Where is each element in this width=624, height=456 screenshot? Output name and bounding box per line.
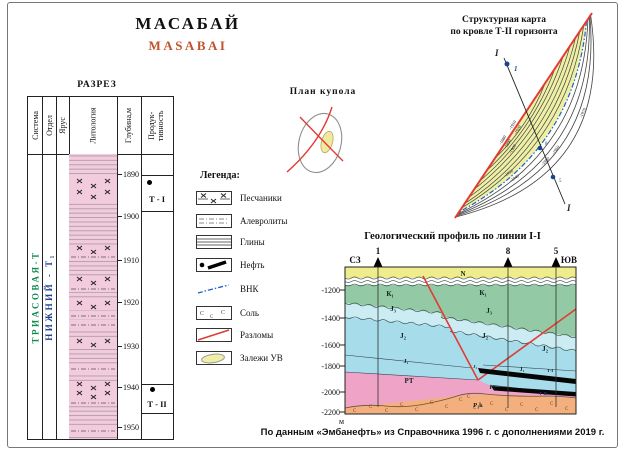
profile-depth-label: -2000 xyxy=(304,388,340,397)
profile-depth-label: -1800 xyxy=(304,362,340,371)
label-j1: J₁ xyxy=(473,364,477,369)
section-label-start: I xyxy=(494,48,499,58)
depth-tick: 1940 xyxy=(117,383,139,392)
legend-item-clay: Глины xyxy=(196,235,265,249)
profile-depth-label: -1200 xyxy=(304,286,340,295)
legend-item-siltstone: Алевролиты xyxy=(196,214,287,228)
depth-value: 1920 xyxy=(123,298,139,307)
header-productivity-label: Продук­тивность xyxy=(148,110,166,142)
well-markers xyxy=(374,257,561,267)
section-label-end: I xyxy=(566,203,571,213)
productivity-divider xyxy=(141,211,173,212)
series-name: НИЖНИЙ - Т₁ xyxy=(44,253,54,341)
legend-label: Залежи УВ xyxy=(240,353,283,363)
well-number: 8 xyxy=(506,246,511,256)
depth-value: 1890 xyxy=(123,170,139,179)
page: МАСАБАЙ MASABAI РАЗРЕЗ Система Отдел Яру… xyxy=(0,0,624,456)
well-label: 5 xyxy=(559,179,562,184)
legend-label: ВНК xyxy=(240,284,259,294)
dome-plan-figure xyxy=(275,98,370,188)
well-label: 1 xyxy=(514,65,518,73)
depth-tick: 1910 xyxy=(117,256,139,265)
label-j2: J₂ xyxy=(482,331,489,340)
well-number: 5 xyxy=(554,246,559,256)
label-t2: Т-II xyxy=(539,391,547,396)
structural-map: I I 1 8 5 -1880 -1890 -1900 -1910 -1920 … xyxy=(415,8,620,233)
well-numbers: 1 8 5 xyxy=(376,246,559,256)
well-marker xyxy=(505,62,510,67)
legend-item-salt: С С С Соль xyxy=(196,306,259,320)
siltstone-icon xyxy=(196,214,232,228)
oil-dot xyxy=(150,387,155,392)
field-title-en: MASABAI xyxy=(93,38,283,54)
label-p1k: P₁k xyxy=(473,402,483,409)
well-marker xyxy=(551,175,556,180)
direction-nw: СЗ xyxy=(349,255,360,265)
legend-label: Разломы xyxy=(240,330,273,340)
depth-tick: 1930 xyxy=(117,342,139,351)
legend-item-hc-deposits: Залежи УВ xyxy=(196,351,283,365)
legend-label: Песчаники xyxy=(240,193,282,203)
well-marker xyxy=(538,146,543,151)
depth-tick: 1950 xyxy=(117,423,139,432)
contour-value: -1970 xyxy=(578,107,587,118)
header-stage: Ярус xyxy=(56,97,69,154)
legend-label: Соль xyxy=(240,308,259,318)
lithology-column xyxy=(69,154,117,439)
well-number: 1 xyxy=(376,246,381,256)
depth-ticks xyxy=(340,290,345,412)
label-pt: РТ xyxy=(404,377,413,385)
header-lithology: Литология xyxy=(69,97,117,154)
field-title-ru: МАСАБАЙ xyxy=(93,14,283,34)
profile-depth-label: -1400 xyxy=(304,314,340,323)
label-k1: К₁ xyxy=(386,290,393,298)
header-depth-label: Глубина,м xyxy=(125,108,134,143)
productivity-divider xyxy=(141,384,173,385)
header-system-label: Система xyxy=(31,111,40,140)
depth-tick: 1900 xyxy=(117,212,139,221)
horizon-t2-label: Т - II xyxy=(141,399,173,409)
label-j2: J₂ xyxy=(542,344,549,353)
header-lithology-label: Литология xyxy=(88,107,97,143)
salt-icon: С С С xyxy=(196,306,232,320)
depth-tick: 1890 xyxy=(117,170,139,179)
label-t1: Т-I xyxy=(547,368,554,373)
label-j1: J₁ xyxy=(404,359,409,365)
legend-item-vnk: ВНК xyxy=(196,282,259,296)
horizon-t1-label: Т - I xyxy=(141,194,173,204)
legend-label: Алевролиты xyxy=(240,216,287,226)
header-system: Система xyxy=(28,97,42,154)
depth-value: 1910 xyxy=(123,256,139,265)
legend-label: Нефть xyxy=(240,260,264,270)
label-j1: J₁ xyxy=(520,367,525,373)
header-series-label: Отдел xyxy=(45,115,54,136)
stratigraphic-column-table: Система Отдел Ярус Литология Глубина,м П… xyxy=(27,96,174,440)
dome-plan-title: План купола xyxy=(277,87,369,97)
razrez-title: РАЗРЕЗ xyxy=(47,80,147,90)
header-series: Отдел xyxy=(42,97,56,154)
label-j3: J₃ xyxy=(486,307,492,315)
header-depth: Глубина,м xyxy=(117,97,141,154)
depth-value: 1940 xyxy=(123,383,139,392)
sandstone-icon xyxy=(196,191,232,205)
profile-title: Геологический профиль по линии I-I xyxy=(325,231,580,242)
system-name: ТРИАСОВАЯ-Т xyxy=(30,250,40,343)
header-productivity: Продук­тивность xyxy=(141,97,173,154)
label-j2: J₂ xyxy=(400,331,407,340)
profile-depth-unit: м xyxy=(339,417,344,426)
contour-value: -1960 xyxy=(551,144,561,155)
profile-depth-label: -1600 xyxy=(304,341,340,350)
legend-item-sandstone: Песчаники xyxy=(196,191,282,205)
series-cell: НИЖНИЙ - Т₁ xyxy=(42,154,56,439)
productivity-divider xyxy=(141,175,173,176)
productivity-divider xyxy=(141,413,173,414)
dome-outline xyxy=(292,109,348,178)
vnk-icon xyxy=(196,282,232,296)
oil-icon xyxy=(196,258,232,272)
legend-item-faults: Разломы xyxy=(196,328,273,342)
label-k1: К₁ xyxy=(479,289,486,297)
depth-value: 1930 xyxy=(123,342,139,351)
oil-dot xyxy=(147,180,152,185)
depth-tick: 1920 xyxy=(117,298,139,307)
svg-text:С: С xyxy=(221,310,225,316)
hc-deposit-icon xyxy=(196,351,232,365)
svg-text:С: С xyxy=(200,311,204,317)
header-stage-label: Ярус xyxy=(58,117,67,134)
source-caption: По данным «Эмбанефть» из Справочника 199… xyxy=(250,427,615,438)
system-cell: ТРИАСОВАЯ-Т xyxy=(28,154,42,439)
direction-se: ЮВ xyxy=(561,255,577,265)
label-pt: РТ xyxy=(489,385,496,391)
clay-icon xyxy=(196,235,232,249)
legend-item-oil: Нефть xyxy=(196,258,264,272)
legend-label: Глины xyxy=(240,237,265,247)
profile-depth-label: -2200 xyxy=(304,408,340,417)
dome-fault-line xyxy=(300,117,343,161)
depth-value: 1950 xyxy=(123,423,139,432)
geological-profile: СС СС СС СС СС СС СС СС 1 8 5 СЗ ЮВ xyxy=(337,243,583,417)
fault-icon xyxy=(196,328,232,342)
label-j3: J₃ xyxy=(390,305,396,313)
legend-title: Легенда: xyxy=(200,170,240,181)
depth-value: 1900 xyxy=(123,212,139,221)
label-n: N xyxy=(460,270,465,278)
